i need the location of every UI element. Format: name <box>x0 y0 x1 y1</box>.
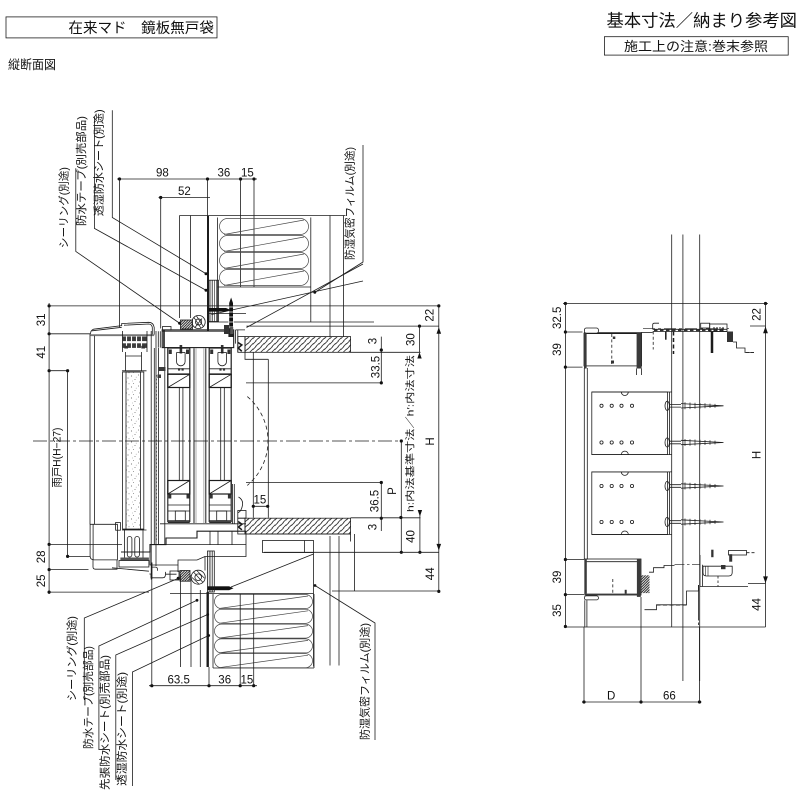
svg-text:防水テープ(別売部品): 防水テープ(別売部品) <box>74 116 88 226</box>
svg-text:在来マド 鏡板無戸袋: 在来マド 鏡板無戸袋 <box>68 19 214 37</box>
svg-text:h:内法基準寸法／h′:内法寸法: h:内法基準寸法／h′:内法寸法 <box>405 355 417 512</box>
svg-text:P: P <box>387 487 399 495</box>
svg-text:縦断面図: 縦断面図 <box>8 57 56 72</box>
svg-text:基本寸法／納まり参考図: 基本寸法／納まり参考図 <box>607 11 798 31</box>
svg-text:41: 41 <box>36 346 48 359</box>
svg-text:35: 35 <box>552 604 564 617</box>
svg-text:63.5: 63.5 <box>168 675 190 687</box>
svg-text:3: 3 <box>368 338 380 344</box>
svg-text:15: 15 <box>241 168 254 180</box>
svg-text:39: 39 <box>552 571 564 584</box>
svg-text:透湿防水シート(別途): 透湿防水シート(別途) <box>92 109 106 216</box>
svg-text:H: H <box>425 437 437 445</box>
svg-text:防湿気密フィルム(別途): 防湿気密フィルム(別途) <box>343 147 357 260</box>
svg-text:先張防水シート(別売部品): 先張防水シート(別売部品) <box>98 655 112 790</box>
svg-text:雨戸H(H−27): 雨戸H(H−27) <box>52 428 64 488</box>
svg-text:D: D <box>607 691 615 703</box>
svg-text:30: 30 <box>406 333 418 346</box>
svg-text:15: 15 <box>254 495 267 507</box>
svg-text:52: 52 <box>178 186 191 198</box>
svg-text:36: 36 <box>218 168 231 180</box>
svg-text:66: 66 <box>663 691 676 703</box>
svg-text:15: 15 <box>241 675 254 687</box>
svg-text:透湿防水シート(別途): 透湿防水シート(別途) <box>114 672 128 786</box>
svg-text:40: 40 <box>406 530 418 543</box>
svg-text:シーリング(別途): シーリング(別途) <box>57 167 71 248</box>
svg-text:22: 22 <box>425 309 437 322</box>
svg-text:22: 22 <box>751 308 763 321</box>
svg-text:98: 98 <box>156 168 169 180</box>
svg-text:32.5: 32.5 <box>552 307 564 329</box>
svg-text:44: 44 <box>751 598 763 611</box>
svg-text:44: 44 <box>425 567 437 580</box>
svg-text:防湿気密フィルム(別途): 防湿気密フィルム(別途) <box>357 623 371 740</box>
svg-text:H: H <box>751 451 763 459</box>
svg-text:39: 39 <box>552 343 564 356</box>
svg-text:33.5: 33.5 <box>371 356 383 378</box>
svg-text:28: 28 <box>36 551 48 564</box>
svg-text:施工上の注意:巻末参照: 施工上の注意:巻末参照 <box>624 39 768 54</box>
svg-text:シーリング(別途): シーリング(別途) <box>64 616 78 701</box>
svg-text:25: 25 <box>36 574 48 587</box>
svg-text:36.5: 36.5 <box>370 490 382 512</box>
svg-text:36: 36 <box>218 675 231 687</box>
svg-text:防水テープ(別売部品): 防水テープ(別売部品) <box>81 646 95 749</box>
svg-text:31: 31 <box>36 313 48 326</box>
svg-text:3: 3 <box>368 524 380 530</box>
